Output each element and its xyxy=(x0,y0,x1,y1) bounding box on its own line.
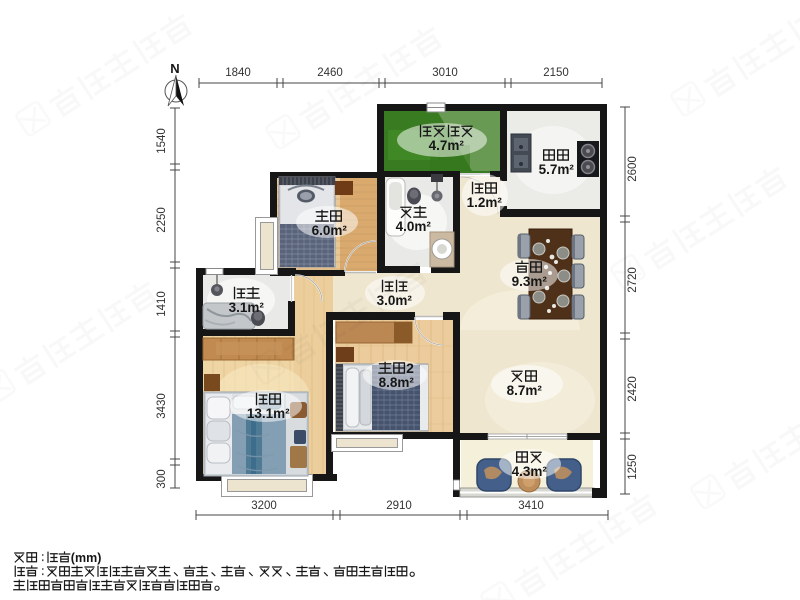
svg-text:9.3m²: 9.3m² xyxy=(512,274,548,289)
svg-text:1840: 1840 xyxy=(225,67,251,79)
svg-text:8.8m²: 8.8m² xyxy=(379,375,415,390)
svg-text:3410: 3410 xyxy=(518,500,544,512)
svg-text:1540: 1540 xyxy=(156,128,168,154)
svg-text:8.7m²: 8.7m² xyxy=(507,383,543,398)
svg-text:13.1m²: 13.1m² xyxy=(247,406,290,421)
svg-text:300: 300 xyxy=(156,469,168,488)
svg-text:5.7m²: 5.7m² xyxy=(539,162,575,177)
svg-text:4.0m²: 4.0m² xyxy=(396,219,432,234)
svg-text:2910: 2910 xyxy=(386,500,412,512)
svg-text:3430: 3430 xyxy=(156,393,168,419)
svg-text:1.2m²: 1.2m² xyxy=(467,195,503,210)
svg-text:3200: 3200 xyxy=(251,500,277,512)
svg-text:2460: 2460 xyxy=(317,67,343,79)
svg-text:6.0m²: 6.0m² xyxy=(312,223,348,238)
svg-text:1410: 1410 xyxy=(156,291,168,317)
svg-text:1250: 1250 xyxy=(627,454,639,480)
svg-text:4.7m²: 4.7m² xyxy=(429,138,465,153)
svg-text:(mm): (mm) xyxy=(71,551,102,565)
svg-text:2250: 2250 xyxy=(156,207,168,233)
svg-text:2600: 2600 xyxy=(627,156,639,182)
svg-text:3.1m²: 3.1m² xyxy=(229,300,265,315)
svg-text:N: N xyxy=(170,61,179,76)
svg-text:2420: 2420 xyxy=(627,376,639,402)
svg-text:4.3m²: 4.3m² xyxy=(512,464,548,479)
svg-text:2: 2 xyxy=(406,360,414,376)
svg-text:3010: 3010 xyxy=(432,67,458,79)
svg-text:2150: 2150 xyxy=(543,67,569,79)
